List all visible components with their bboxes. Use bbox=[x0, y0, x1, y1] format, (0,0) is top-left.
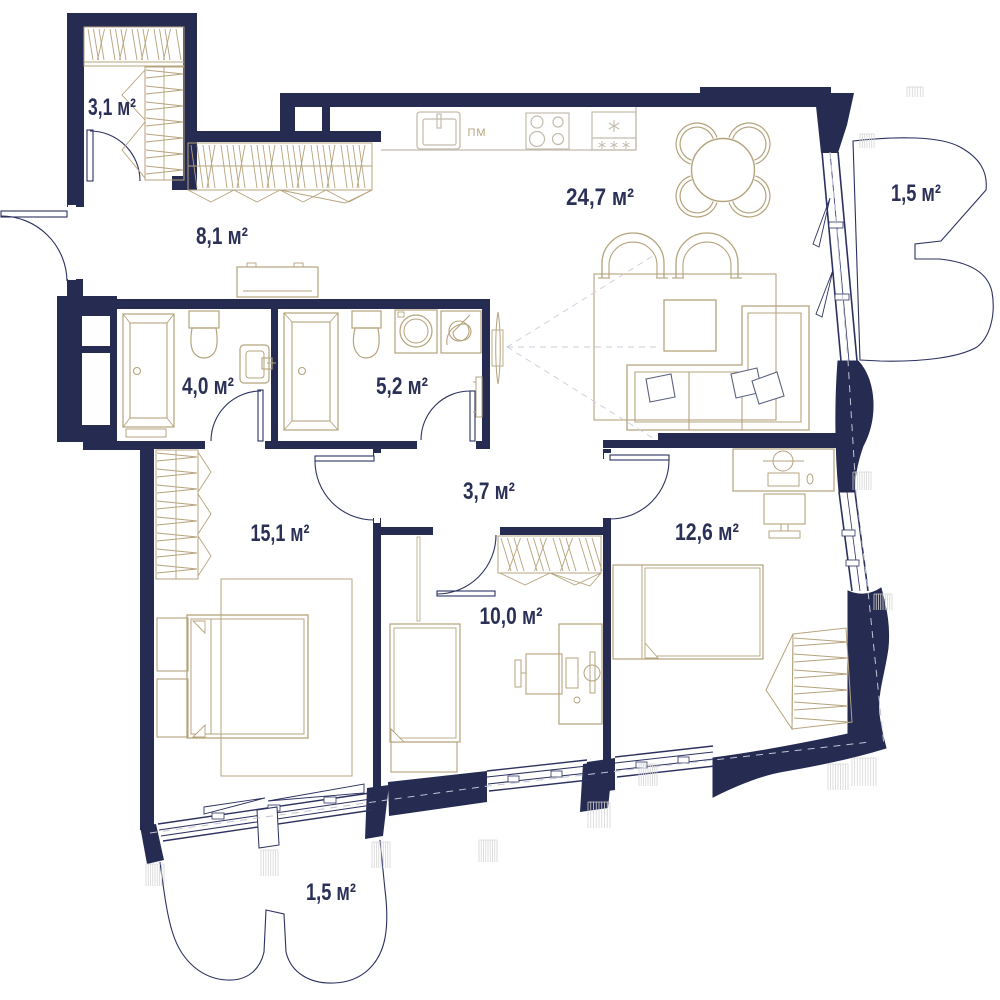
svg-text:5,2 м²: 5,2 м² bbox=[376, 373, 428, 400]
svg-text:10,0 м²: 10,0 м² bbox=[480, 603, 543, 630]
svg-text:8,1 м²: 8,1 м² bbox=[196, 223, 248, 250]
svg-text:3,7 м²: 3,7 м² bbox=[463, 478, 515, 505]
svg-text:12,6 м²: 12,6 м² bbox=[675, 519, 739, 546]
svg-text:ПМ: ПМ bbox=[467, 127, 486, 139]
svg-text:15,1 м²: 15,1 м² bbox=[251, 520, 310, 547]
svg-text:1,5 м²: 1,5 м² bbox=[306, 879, 356, 906]
svg-text:1,5 м²: 1,5 м² bbox=[891, 180, 941, 207]
svg-text:3,1 м²: 3,1 м² bbox=[88, 94, 136, 121]
svg-text:24,7 м²: 24,7 м² bbox=[566, 184, 634, 211]
svg-text:4,0 м²: 4,0 м² bbox=[182, 373, 234, 400]
